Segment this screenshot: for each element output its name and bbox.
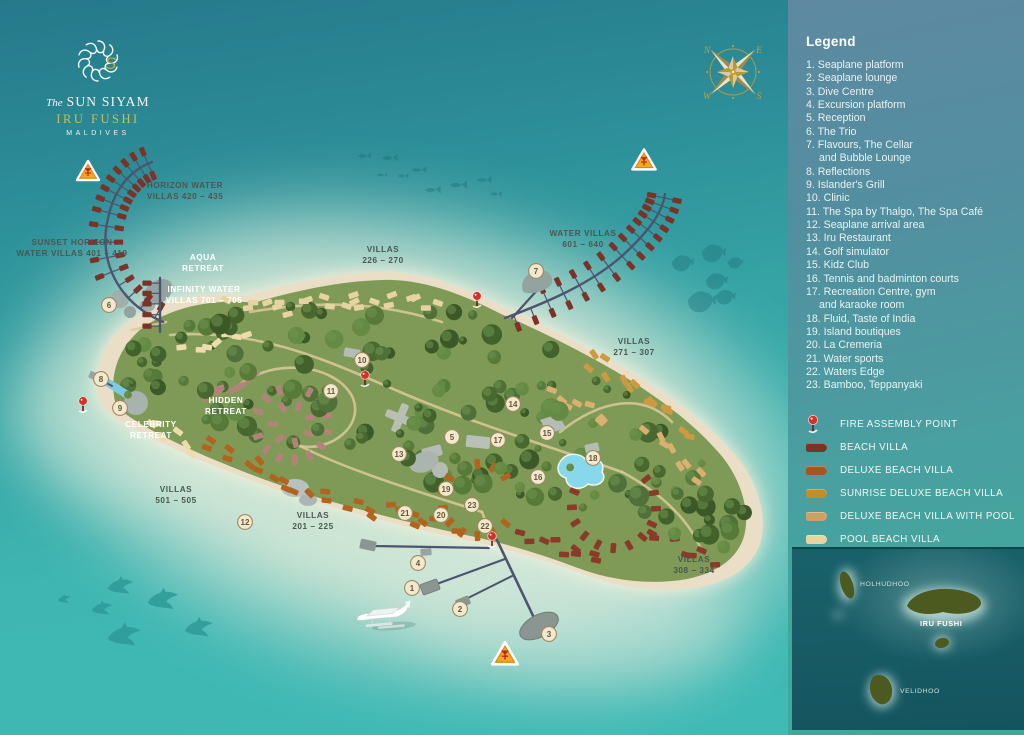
legend-key-row: BEACH VILLA — [806, 436, 1014, 459]
legend-key-label: FIRE ASSEMBLY POINT — [832, 419, 958, 430]
svg-text:5: 5 — [450, 433, 455, 442]
logo-resort-name: IRU FUSHI — [28, 112, 168, 127]
svg-text:17: 17 — [494, 436, 503, 445]
map-marker-13: 13 — [392, 447, 407, 462]
legend-title: Legend — [806, 34, 1014, 49]
map-marker-17: 17 — [491, 433, 506, 448]
legend-item: 2. Seaplane lounge — [806, 72, 1014, 85]
svg-text:9: 9 — [118, 404, 123, 413]
inset-atoll-map: HOLHUDHOOIRU FUSHIVELIDHOO — [792, 547, 1024, 730]
legend-item: 1. Seaplane platform — [806, 59, 1014, 72]
resort-map-page: HORIZON WATERVILLAS 420 – 435SUNSET HORI… — [0, 0, 1024, 735]
villa-swatch-icon — [806, 466, 832, 475]
map-marker-22: 22 — [478, 519, 493, 534]
compass-letter: W — [703, 92, 712, 102]
compass-letter: E — [755, 46, 762, 56]
legend-item: 15. Kidz Club — [806, 259, 1014, 272]
inset-island-label: IRU FUSHI — [920, 619, 962, 628]
resort-logo: S TheSUN SIYAM IRU FUSHI MALDIVES — [28, 32, 168, 137]
legend-key-row: DELUXE BEACH VILLA — [806, 459, 1014, 482]
legend-item: 22. Waters Edge — [806, 366, 1014, 379]
svg-text:1: 1 — [410, 584, 415, 593]
legend-key-label: DELUXE BEACH VILLA WITH POOL — [832, 511, 1015, 522]
logo-the: The — [46, 97, 63, 109]
map-marker-5: 5 — [445, 430, 460, 445]
map-marker-2: 2 — [453, 602, 468, 617]
legend-item: 17. Recreation Centre, gymand karaoke ro… — [806, 286, 1014, 313]
svg-text:8: 8 — [99, 375, 104, 384]
svg-text:22: 22 — [481, 522, 490, 531]
villa-swatch-icon — [806, 443, 832, 452]
map-marker-7: 7 — [529, 264, 544, 279]
map-marker-18: 18 — [586, 451, 601, 466]
area-label: SUNSET HORIZONWATER VILLAS 401 – 419 — [16, 238, 127, 258]
map-marker-6: 6 — [102, 298, 117, 313]
svg-text:23: 23 — [468, 501, 477, 510]
svg-text:10: 10 — [358, 356, 367, 365]
svg-text:13: 13 — [395, 450, 404, 459]
legend-list: 1. Seaplane platform2. Seaplane lounge3.… — [806, 59, 1014, 393]
svg-text:21: 21 — [401, 509, 410, 518]
villa-type-key: FIRE ASSEMBLY POINTBEACH VILLADELUXE BEA… — [806, 413, 1014, 551]
legend-key-label: BEACH VILLA — [832, 442, 908, 453]
villa-swatch-icon — [806, 489, 832, 498]
assembly-warning-triangle-icon — [632, 149, 655, 169]
map-marker-14: 14 — [506, 397, 521, 412]
inset-island-label: HOLHUDHOO — [860, 581, 910, 588]
map-marker-4: 4 — [411, 556, 426, 571]
legend-panel: Legend 1. Seaplane platform2. Seaplane l… — [788, 0, 1024, 735]
svg-text:15: 15 — [543, 429, 552, 438]
svg-text:S: S — [105, 54, 117, 73]
legend-item: 23. Bamboo, Teppanyaki — [806, 379, 1014, 392]
legend-item: 5. Reception — [806, 112, 1014, 125]
legend-key-row: SUNRISE DELUXE BEACH VILLA — [806, 482, 1014, 505]
svg-text:16: 16 — [534, 473, 543, 482]
legend-key-label: SUNRISE DELUXE BEACH VILLA — [832, 488, 1003, 499]
svg-text:20: 20 — [437, 511, 446, 520]
map-marker-1: 1 — [405, 581, 420, 596]
legend-item: 18. Fluid, Taste of India — [806, 313, 1014, 326]
logo-country: MALDIVES — [28, 130, 168, 137]
legend-item: 8. Reflections — [806, 166, 1014, 179]
inset-island-glows — [832, 568, 986, 708]
legend-item: 13. Iru Restaurant — [806, 232, 1014, 245]
svg-text:4: 4 — [416, 559, 421, 568]
fire-pin-icon — [806, 415, 832, 434]
map-marker-23: 23 — [465, 498, 480, 513]
svg-text:18: 18 — [589, 454, 598, 463]
main-map: HORIZON WATERVILLAS 420 – 435SUNSET HORI… — [0, 0, 788, 735]
map-marker-19: 19 — [439, 482, 454, 497]
logo-brand: SUN SIYAM — [67, 94, 150, 109]
svg-text:6: 6 — [107, 301, 112, 310]
legend-key-label: POOL BEACH VILLA — [832, 534, 940, 545]
compass-letter: N — [703, 46, 711, 56]
legend-item: 3. Dive Centre — [806, 86, 1014, 99]
assembly-warning-triangle-icon — [77, 161, 99, 180]
inset-island-label: VELIDHOO — [900, 688, 940, 695]
svg-text:2: 2 — [458, 605, 463, 614]
map-marker-3: 3 — [542, 627, 557, 642]
map-marker-16: 16 — [531, 470, 546, 485]
legend-key-row: DELUXE BEACH VILLA WITH POOL — [806, 505, 1014, 528]
map-marker-9: 9 — [113, 401, 128, 416]
svg-text:3: 3 — [547, 630, 552, 639]
map-marker-15: 15 — [540, 426, 555, 441]
legend-item: 9. Islander's Grill — [806, 179, 1014, 192]
svg-text:11: 11 — [327, 387, 336, 396]
legend-item: 11. The Spa by Thalgo, The Spa Café — [806, 206, 1014, 219]
legend-item: 12. Seaplane arrival area — [806, 219, 1014, 232]
villa-swatch-icon — [806, 535, 832, 544]
svg-text:7: 7 — [534, 267, 539, 276]
map-marker-11: 11 — [324, 384, 339, 399]
map-marker-20: 20 — [434, 508, 449, 523]
legend-item: 19. Island boutiques — [806, 326, 1014, 339]
villa-swatch-icon — [806, 512, 832, 521]
legend-item: 6. The Trio — [806, 126, 1014, 139]
svg-text:19: 19 — [442, 485, 451, 494]
area-label: HORIZON WATERVILLAS 420 – 435 — [147, 181, 224, 201]
legend-item: 16. Tennis and badminton courts — [806, 273, 1014, 286]
svg-text:14: 14 — [509, 400, 518, 409]
legend-item: 21. Water sports — [806, 353, 1014, 366]
legend-key-row: FIRE ASSEMBLY POINT — [806, 413, 1014, 436]
compass-letter: S — [757, 92, 762, 102]
map-marker-8: 8 — [94, 372, 109, 387]
logo-brand-line: TheSUN SIYAM — [28, 94, 168, 110]
map-marker-10: 10 — [355, 353, 370, 368]
sun-siyam-logo-mark: S — [69, 32, 127, 90]
legend-item: 10. Clinic — [806, 192, 1014, 205]
legend-item: 4. Excursion platform — [806, 99, 1014, 112]
legend-item: 7. Flavours, The Cellarand Bubble Lounge — [806, 139, 1014, 166]
legend-item: 20. La Cremeria — [806, 339, 1014, 352]
svg-text:12: 12 — [241, 518, 250, 527]
legend-item: 14. Golf simulator — [806, 246, 1014, 259]
map-marker-12: 12 — [238, 515, 253, 530]
legend-key-label: DELUXE BEACH VILLA — [832, 465, 953, 476]
compass-rose-icon: NEWS — [703, 45, 762, 102]
map-marker-21: 21 — [398, 506, 413, 521]
